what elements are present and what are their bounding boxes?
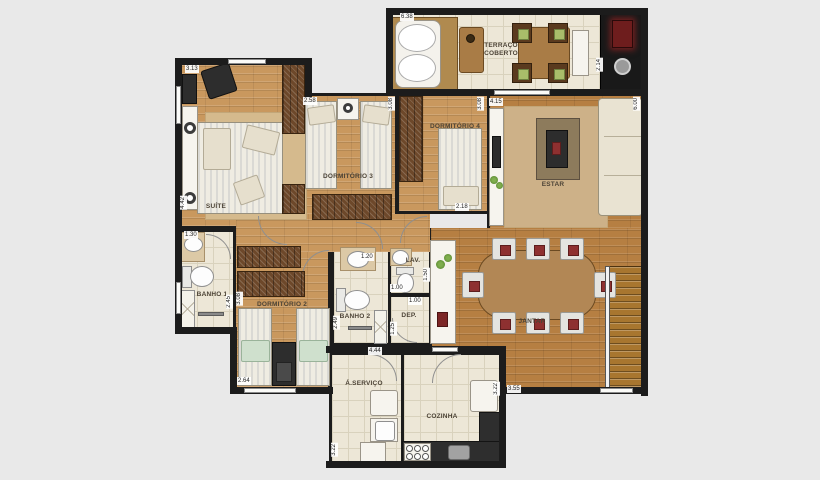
towel-bar-icon <box>198 312 224 316</box>
dim-cozinha-depth: 3.22 <box>493 382 500 396</box>
label-dormitorio4: DORMITÓRIO 4 <box>426 123 484 130</box>
tank-basin <box>375 421 395 441</box>
chair-cushion <box>554 29 565 40</box>
bbq-sink-icon <box>614 58 631 75</box>
label-banho2: BANHO 2 <box>337 313 373 320</box>
dim-hall-width: 4.44 <box>368 347 382 355</box>
tv-icon <box>276 362 292 382</box>
label-suite: SUÍTE <box>196 203 236 210</box>
terrace-glass-door <box>494 90 550 95</box>
wall-right-outer <box>641 8 648 396</box>
label-dormitorio2: DORMITÓRIO 2 <box>252 301 312 308</box>
towel-bar-icon <box>348 326 372 330</box>
terrace-bench <box>572 30 589 76</box>
dim-dorm4-width: 2.18 <box>455 203 469 211</box>
chair-cushion <box>518 29 529 40</box>
kitchen-sink <box>448 445 470 460</box>
dim-estar-width: 4.15 <box>489 98 503 106</box>
burner-icon <box>422 445 429 452</box>
dorm2-wardrobe <box>237 271 305 297</box>
sink-basin-icon <box>184 237 203 252</box>
bed-pillow <box>299 340 328 362</box>
cozinha-door-gap <box>432 347 458 352</box>
wall-kitchen-bottom <box>326 461 506 468</box>
dim-terraco-width: 6.38 <box>400 13 414 21</box>
burner-icon <box>414 445 421 452</box>
burner-icon <box>422 453 429 460</box>
wall-dorm2-left <box>230 327 237 393</box>
entry-door-opening <box>600 388 633 393</box>
suite-wardrobe <box>282 184 305 214</box>
chair-cushion <box>518 69 529 80</box>
stair-railing <box>605 266 610 388</box>
toilet-icon <box>190 266 214 287</box>
dim-banho2-width: 1.20 <box>360 253 374 261</box>
toilet-icon <box>344 290 370 310</box>
wall-cozinha-right <box>499 346 506 468</box>
floor-plan: TERRAÇO COBERTO SUÍTE DORMITÓRIO 3 DORMI… <box>0 0 820 480</box>
dining-chair <box>560 312 584 334</box>
label-dormitorio3: DORMITÓRIO 3 <box>318 173 378 180</box>
label-cozinha: COZINHA <box>420 413 464 420</box>
dorm3-wardrobe <box>312 194 392 220</box>
suite-lamp-icon <box>184 122 196 134</box>
dining-chair <box>560 238 584 260</box>
chair-cushion <box>534 245 545 256</box>
shower-door <box>374 310 387 344</box>
terrace-chair <box>548 23 568 43</box>
dim-estar-depth: 6.00 <box>633 97 640 111</box>
dim-banho1-width: 1.30 <box>184 231 198 239</box>
dim-dorm2-width: 2.64 <box>237 377 251 385</box>
bed-pillow <box>362 104 391 126</box>
chair-cushion <box>469 281 480 292</box>
dorm4-wardrobe <box>399 96 423 182</box>
dim-banho1-depth: 2.45 <box>226 295 233 309</box>
label-dep: DEP. <box>398 312 420 319</box>
barbecue-grill-icon <box>612 20 633 48</box>
wall-hall-bottom <box>326 346 406 353</box>
bed-pillow <box>307 104 336 126</box>
wall-terrace-left <box>386 8 393 96</box>
label-banho1: BANHO 1 <box>194 291 230 298</box>
dim-lav-width: 1.00 <box>390 284 404 292</box>
terrace-lounge-pillow <box>398 54 436 82</box>
plant-icon <box>496 182 503 189</box>
plant-icon <box>444 254 452 262</box>
dim-dorm2-depth: 3.08 <box>236 292 243 306</box>
label-jantar: JANTAR <box>514 318 550 325</box>
shower-box <box>180 290 195 328</box>
wall-suite-right <box>305 58 312 98</box>
chair-cushion <box>500 319 511 330</box>
dim-lav-depth: 1.50 <box>423 268 430 282</box>
dorm2-window <box>244 388 296 393</box>
dim-jantar-width: 3.55 <box>507 385 521 393</box>
dim-dorm3-width: 2.58 <box>303 97 317 105</box>
terrace-chair <box>512 23 532 43</box>
dim-suite-width: 3.13 <box>185 65 199 73</box>
dorm2-wardrobe <box>237 246 301 268</box>
wall-terrace-top <box>386 8 648 15</box>
bed-pillow <box>241 340 270 362</box>
dim-dorm4-depth: 3.08 <box>477 97 484 111</box>
burner-icon <box>406 453 413 460</box>
dim-dep-depth: 1.25 <box>390 322 397 336</box>
suite-window-top <box>228 59 266 64</box>
dorm3-lamp-icon <box>343 103 353 113</box>
estar-sofa <box>598 98 643 216</box>
label-estar: ESTAR <box>536 181 570 188</box>
dim-dorm3-depth: 3.08 <box>388 97 395 111</box>
dining-table <box>478 250 596 320</box>
sofa-seam <box>604 136 642 137</box>
chair-cushion <box>568 245 579 256</box>
sideboard-decor <box>492 136 501 168</box>
chair-cushion <box>554 69 565 80</box>
label-servico: Á.SERVIÇO <box>340 380 388 387</box>
banho1-window-left <box>176 282 181 314</box>
jantar-buffet <box>430 240 456 344</box>
wall-banho1-bottom <box>175 327 237 334</box>
dining-chair <box>526 238 550 260</box>
dim-dep-width: 1.00 <box>408 297 422 305</box>
terrace-lounge-pillow <box>398 24 436 52</box>
chair-cushion <box>500 245 511 256</box>
buffet-decor <box>437 312 448 327</box>
dim-banho2-depth: 2.49 <box>333 316 340 330</box>
chair-cushion <box>568 319 579 330</box>
label-lav: LAV. <box>402 257 424 264</box>
plant-icon <box>436 260 445 269</box>
sofa-seam <box>604 175 642 176</box>
terrace-chair <box>548 63 568 83</box>
tv-accent <box>552 142 561 155</box>
dim-suite-depth: 4.42 <box>180 196 187 210</box>
bed-pillow <box>203 128 231 170</box>
dim-terraco-depth: 2.14 <box>596 58 603 72</box>
dining-chair <box>492 238 516 260</box>
dining-chair <box>492 312 516 334</box>
suite-wardrobe <box>282 64 305 134</box>
label-terraco: TERRAÇO COBERTO <box>470 42 532 58</box>
dining-chair <box>462 272 484 298</box>
dim-servico-depth: 3.22 <box>331 443 338 457</box>
burner-icon <box>406 445 413 452</box>
suite-tv-panel <box>182 74 197 104</box>
terrace-chair <box>512 63 532 83</box>
washing-machine <box>370 390 398 416</box>
burner-icon <box>414 453 421 460</box>
suite-window-left <box>176 86 181 124</box>
